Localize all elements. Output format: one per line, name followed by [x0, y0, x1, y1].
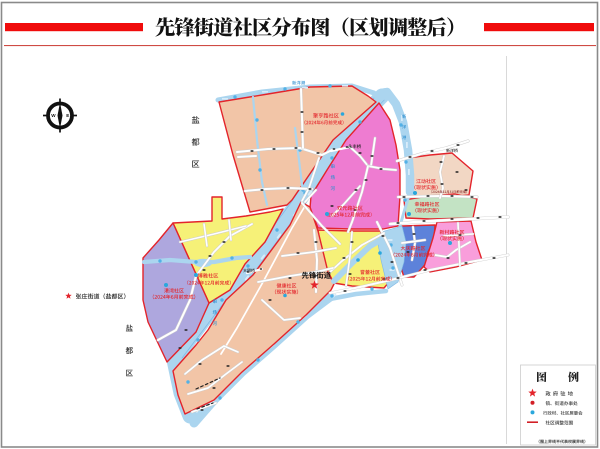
svg-text:W: W: [51, 113, 56, 118]
svg-text:E: E: [66, 113, 69, 118]
